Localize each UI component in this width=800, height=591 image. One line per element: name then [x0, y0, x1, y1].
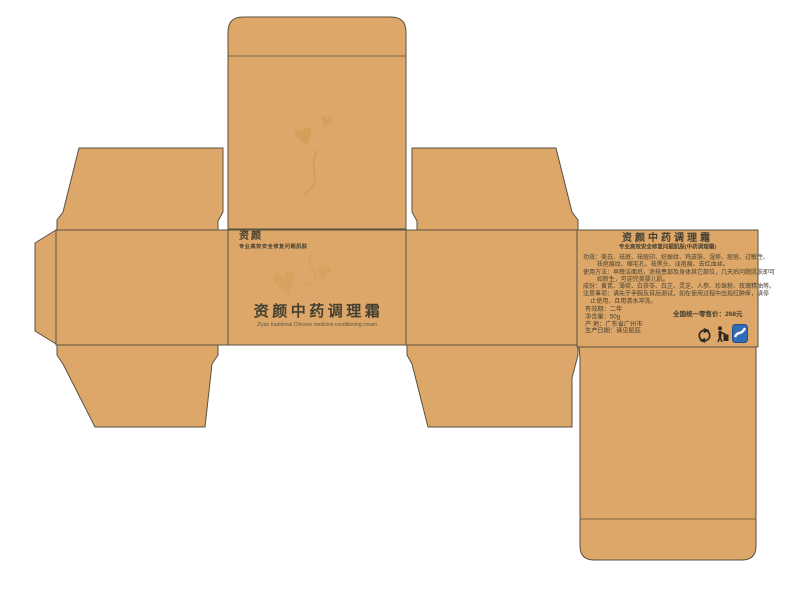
back-body-text: 功效：美白、祛斑、祛痘印、妊娠纹、鸡皮肤、湿疹、痘痘、过敏性、 祛疤痕纹、缩毛孔… [583, 254, 755, 306]
shelf-life: 有效期：二年 [585, 306, 643, 313]
front-brand-logo: 资颜 [239, 227, 263, 242]
lid-panel [228, 17, 406, 229]
efficacy-line: 祛疤痕纹、缩毛孔、祛黑头、淡痘痕、去红血丝。 [583, 261, 755, 268]
front-brand-subtitle: 专业高效安全修复问题肌肤 [239, 242, 395, 250]
certification-icons [697, 324, 748, 343]
left-side-panel [56, 230, 228, 345]
front-product-title: 资颜中药调理霜 [228, 300, 406, 321]
caution-line: 止使用，且用清水冲洗。 [583, 298, 755, 305]
retail-price: 全国统一零售价：268元 [673, 309, 772, 318]
recycle-icon [697, 328, 712, 343]
production-date: 生产日期：请见瓶底 [585, 328, 643, 335]
front-product-title-english: Ziyan traditional Chinese medicine condi… [228, 322, 406, 328]
product-info-block: 有效期：二年 净含量：50g 产 地：广东省广州市 生产日期：请见瓶底 [585, 306, 643, 335]
back-product-subtitle: 专业高效安全修复问题肌肤(中药调理霜) [577, 242, 758, 250]
bottom-left-dust-flap [57, 345, 218, 427]
bottom-right-dust-flap [407, 345, 578, 427]
right-side-panel [406, 230, 577, 345]
usage-line: 使用方法：早晚洁面后，涂抹患部及身体其它部位，几天后问题肌肤即可 [583, 269, 755, 276]
packaging-dieline: { "colors": { "panel_fill": "#dca768", "… [0, 0, 800, 591]
bottom-tuck-panel [579, 347, 756, 560]
caution-line: 注意事项：请先于手腕及耳后测试，如在使用过程中出现红肿痒，请停 [583, 291, 755, 298]
net-content: 净含量：50g [585, 313, 643, 320]
cert-icon [732, 324, 748, 343]
glue-tab [35, 230, 56, 344]
tidyman-icon [715, 326, 729, 343]
dieline-stage: ♥ ♥ ♥ ♥ 资颜 专业高效安全修复问题肌肤 资颜中药调理霜 Ziyan tr… [0, 0, 800, 591]
usage-line: 如新生，可迎完美婴儿肌。 [583, 276, 755, 283]
top-right-dust-flap [412, 148, 578, 230]
top-left-dust-flap [57, 148, 223, 230]
